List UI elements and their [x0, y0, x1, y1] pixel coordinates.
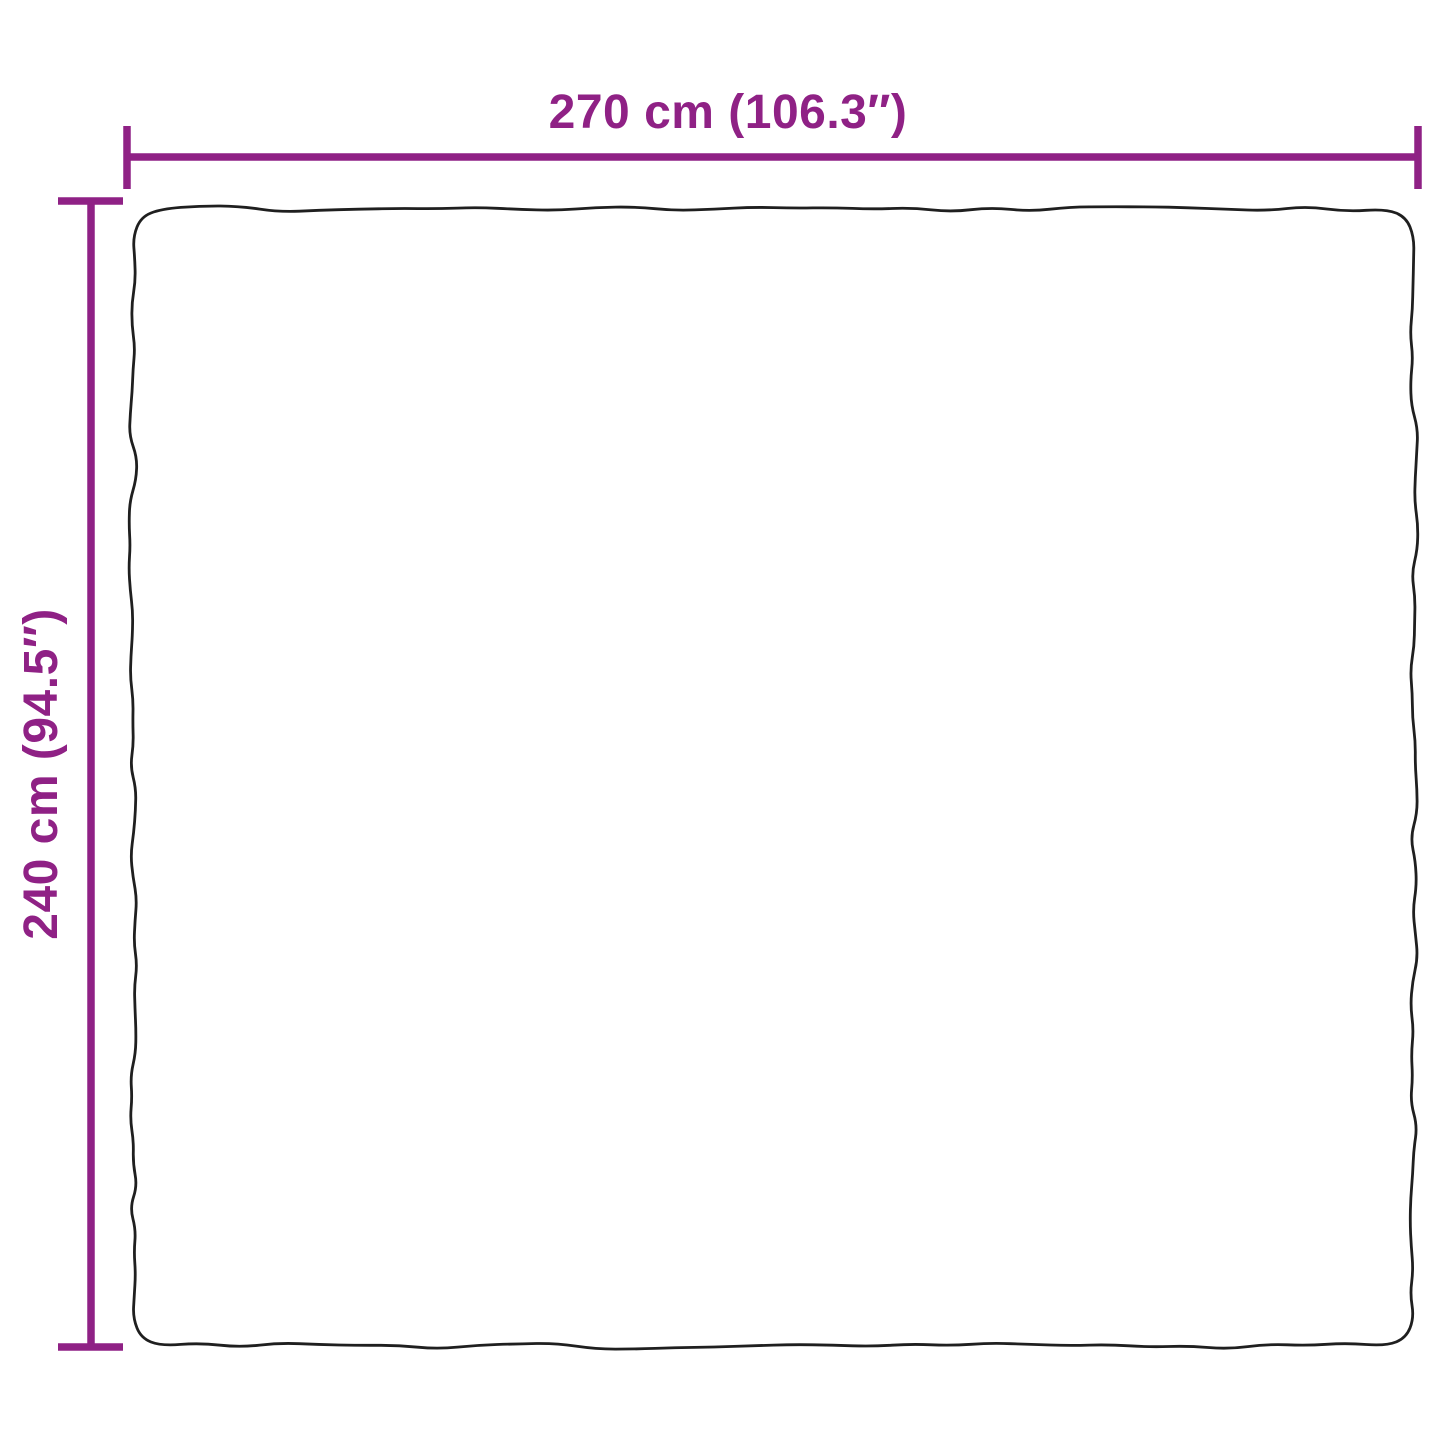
diagram-canvas: 270 cm (106.3″) 240 cm (94.5″) [0, 0, 1445, 1445]
height-dimension: 240 cm (94.5″) [15, 201, 123, 1347]
width-dimension-label: 270 cm (106.3″) [549, 86, 908, 139]
height-dimension-label: 240 cm (94.5″) [15, 608, 68, 940]
dimension-diagram: 270 cm (106.3″) 240 cm (94.5″) [0, 0, 1445, 1445]
product-outline [129, 206, 1418, 1349]
width-dimension: 270 cm (106.3″) [127, 86, 1418, 189]
